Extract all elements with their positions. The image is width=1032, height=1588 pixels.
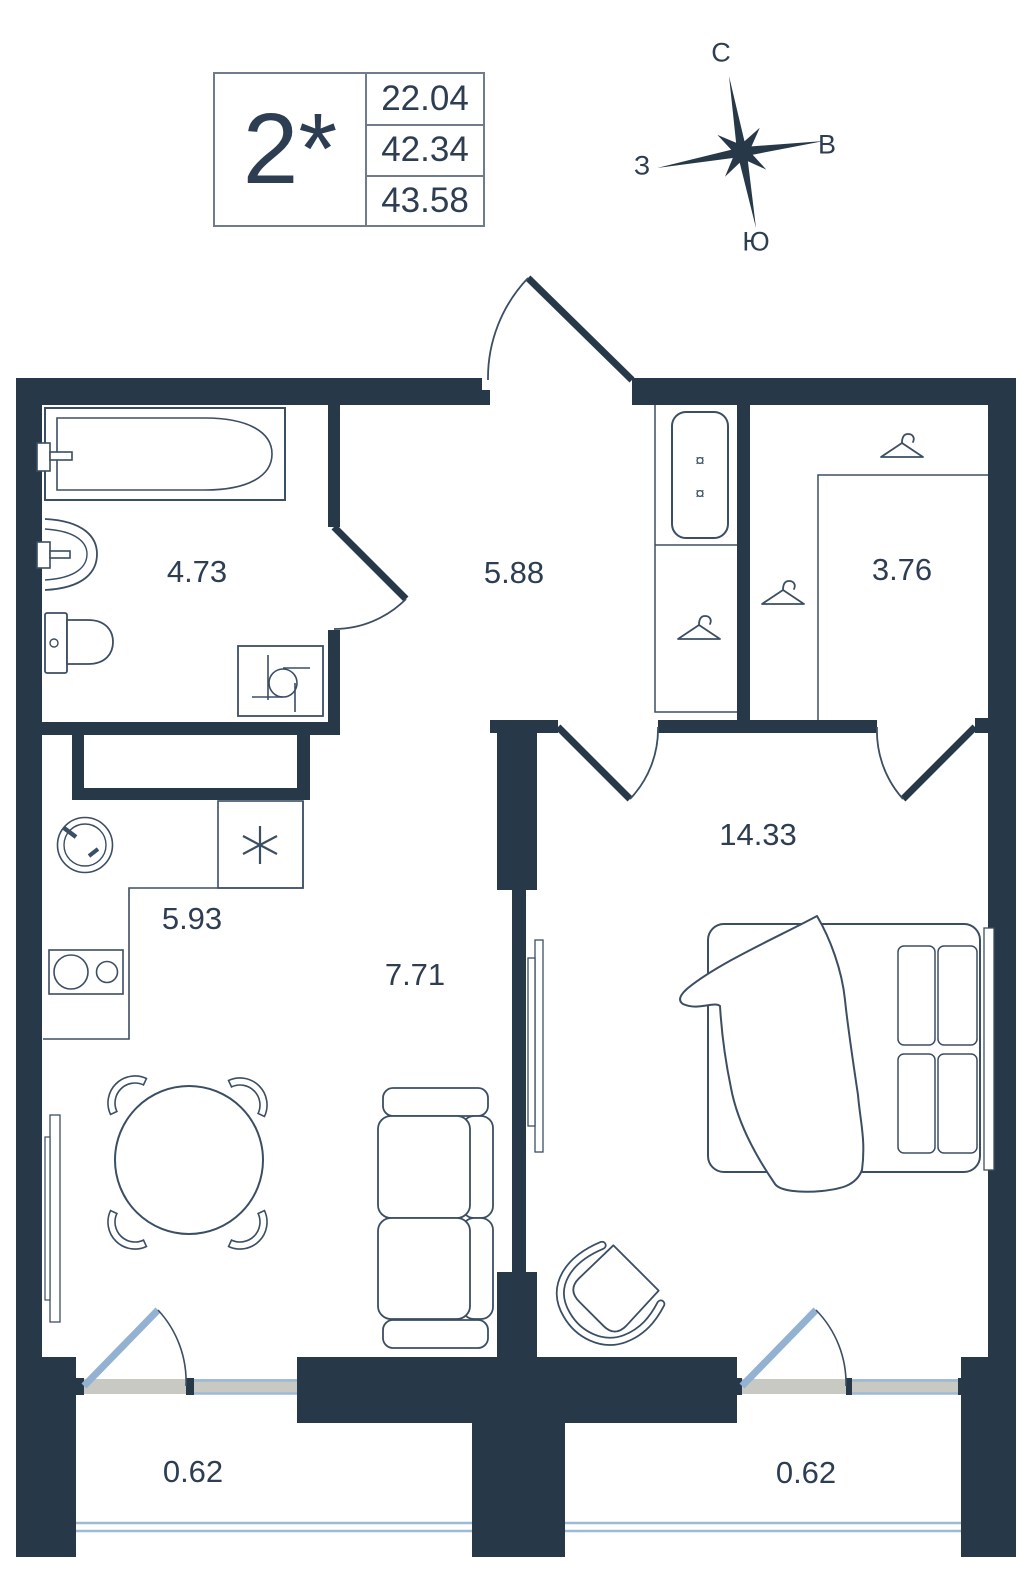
legend-total-area: 43.58 bbox=[367, 175, 483, 225]
legend-rooms-count: 2* bbox=[215, 74, 367, 225]
pier-bottom-left bbox=[16, 1357, 76, 1557]
hall-wall-left-segment bbox=[490, 720, 558, 733]
legend-box: 2* 22.04 42.34 43.58 bbox=[213, 72, 485, 227]
bathroom-wall-right-upper bbox=[328, 405, 340, 527]
balcony-left-door bbox=[84, 1310, 186, 1386]
sofa-icon bbox=[378, 1088, 493, 1348]
bathroom-wall-right-lower bbox=[328, 630, 340, 722]
partition-pillar-top bbox=[497, 733, 537, 890]
balcony-right-area-label: 0.62 bbox=[776, 1455, 836, 1491]
cabinet-wall bbox=[737, 405, 750, 720]
duct-wall-bottom bbox=[72, 788, 310, 800]
fridge-star-icon bbox=[243, 826, 277, 864]
wardrobe-area-label: 3.76 bbox=[872, 552, 932, 588]
pier-bottom-center bbox=[472, 1423, 565, 1557]
partition-pillar-bottom bbox=[497, 1272, 537, 1357]
bathroom-door bbox=[334, 527, 406, 629]
kitchen-sink-icon bbox=[58, 818, 113, 873]
hanger-icon bbox=[881, 434, 923, 457]
entry-door bbox=[488, 278, 632, 380]
balcony-right-door-sill bbox=[742, 1379, 846, 1394]
hanger-icon bbox=[678, 616, 720, 639]
wall-right bbox=[988, 378, 1016, 1358]
sliding-wardrobe-icon bbox=[672, 412, 728, 538]
armchair-icon bbox=[543, 1235, 669, 1361]
sill-stub-left-a bbox=[76, 1378, 84, 1395]
hanger-icon bbox=[762, 581, 804, 604]
entry-door-stub-left bbox=[478, 390, 490, 405]
compass-south-label: Ю bbox=[742, 227, 769, 258]
south-wall-band bbox=[297, 1357, 737, 1423]
washing-machine-icon bbox=[238, 646, 323, 716]
living-area-label: 7.71 bbox=[385, 957, 445, 993]
bathroom-wall-bottom bbox=[16, 722, 340, 735]
balcony-right-door bbox=[742, 1310, 846, 1386]
sink-icon bbox=[37, 519, 97, 590]
dining-table-icon bbox=[115, 1086, 263, 1234]
kitchen-area-label: 5.93 bbox=[162, 901, 222, 937]
balcony-left-area-label: 0.62 bbox=[163, 1454, 223, 1490]
wall-left bbox=[16, 378, 42, 1358]
radiator-icon bbox=[50, 1115, 60, 1322]
toilet-icon bbox=[45, 613, 113, 673]
compass-east-label: В bbox=[818, 130, 836, 161]
stove-icon bbox=[49, 950, 123, 994]
duct-wall-right bbox=[297, 735, 310, 800]
wardrobe-door-stub bbox=[975, 718, 990, 733]
sill-stub-right-a bbox=[735, 1378, 742, 1395]
pier-bottom-right bbox=[961, 1357, 1016, 1557]
wall-top-right bbox=[632, 378, 1016, 405]
balcony-left-door-sill bbox=[84, 1379, 186, 1394]
sill-stub-right-c bbox=[958, 1378, 963, 1395]
partition-wall bbox=[512, 890, 526, 1272]
living-furniture bbox=[45, 940, 670, 1361]
bedroom-area-label: 14.33 bbox=[719, 817, 797, 853]
wardrobe-door bbox=[877, 727, 975, 799]
wardrobe-unit-outline bbox=[818, 475, 988, 720]
hall-wall-mid-segment bbox=[658, 720, 877, 733]
sill-stub-left-b bbox=[186, 1378, 194, 1395]
hallway-area-label: 5.88 bbox=[484, 555, 544, 591]
bedroom-door bbox=[558, 727, 658, 799]
floor-plan-drawing: ¤ ¤ bbox=[0, 0, 1032, 1588]
wardrobe-marker-icon: ¤ bbox=[695, 484, 704, 503]
wall-top-left bbox=[16, 378, 482, 405]
headboard-icon bbox=[984, 928, 994, 1170]
compass-star-icon bbox=[657, 76, 824, 228]
tv-icon bbox=[528, 940, 543, 1152]
floor-plan-page: ¤ ¤ bbox=[0, 0, 1032, 1588]
legend-apartment-area: 42.34 bbox=[367, 124, 483, 174]
bedroom-furniture bbox=[680, 916, 994, 1192]
legend-living-area: 22.04 bbox=[367, 74, 483, 124]
hall-cabinet: ¤ ¤ bbox=[655, 405, 737, 712]
wardrobe-marker-icon: ¤ bbox=[695, 451, 704, 470]
compass-west-label: З bbox=[634, 151, 650, 182]
bathtub-icon bbox=[37, 408, 285, 500]
bathroom-area-label: 4.73 bbox=[167, 554, 227, 590]
compass-north-label: С bbox=[711, 38, 731, 69]
sill-stub-right-b bbox=[846, 1378, 852, 1395]
